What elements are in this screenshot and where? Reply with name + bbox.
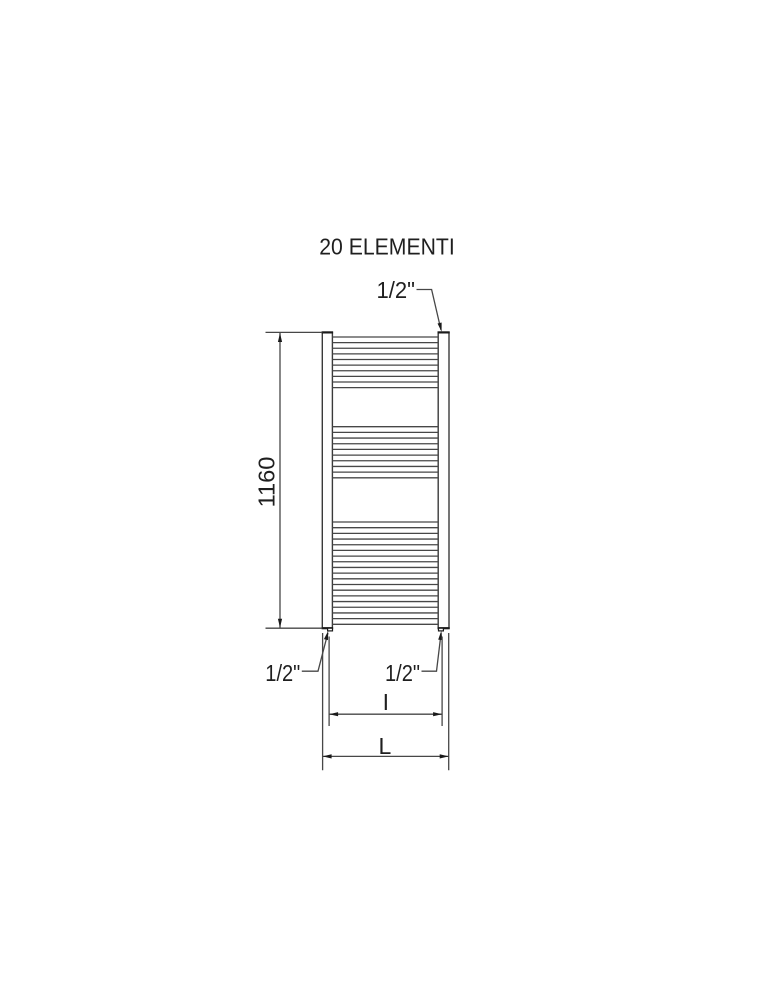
svg-text:L: L	[379, 733, 392, 759]
svg-text:1/2": 1/2"	[265, 660, 300, 686]
svg-text:20 ELEMENTI: 20 ELEMENTI	[319, 234, 455, 260]
svg-text:I: I	[383, 689, 389, 715]
svg-text:1/2": 1/2"	[377, 277, 416, 303]
svg-text:1/2": 1/2"	[385, 660, 420, 686]
svg-text:1160: 1160	[254, 457, 280, 508]
